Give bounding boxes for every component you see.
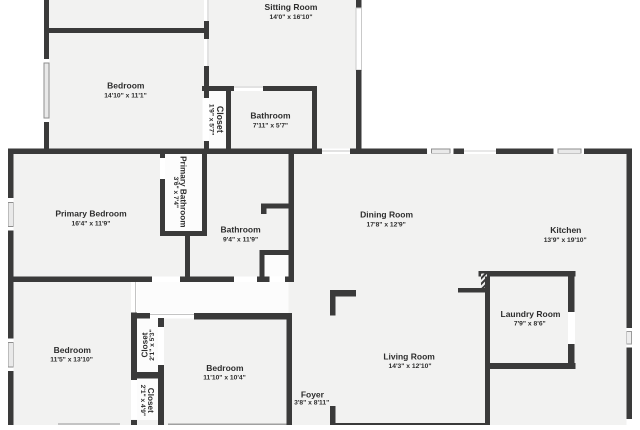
svg-text:Closet: Closet [146,388,155,413]
svg-text:Primary Bedroom: Primary Bedroom [55,209,127,219]
svg-text:9'4" x 11'9": 9'4" x 11'9" [223,237,258,244]
svg-text:Dining Room: Dining Room [360,210,413,220]
svg-text:Sitting Room: Sitting Room [265,2,318,12]
svg-text:2'1" x 5'3": 2'1" x 5'3" [149,329,156,360]
svg-text:7'9" x 8'6": 7'9" x 8'6" [514,321,546,328]
svg-text:Bedroom: Bedroom [54,345,92,355]
svg-text:14'3" x 12'10": 14'3" x 12'10" [389,363,432,370]
svg-text:Bedroom: Bedroom [206,363,244,373]
svg-text:Bathroom: Bathroom [221,225,262,235]
svg-text:11'10" x 10'4": 11'10" x 10'4" [203,375,246,382]
svg-text:7'11" x 5'7": 7'11" x 5'7" [253,122,288,129]
svg-text:17'8" x 12'9": 17'8" x 12'9" [367,222,406,229]
svg-text:3'8" x 8'11": 3'8" x 8'11" [294,400,329,407]
svg-text:3'6" x 7'4": 3'6" x 7'4" [172,177,179,208]
svg-text:14'0" x 16'10": 14'0" x 16'10" [270,14,313,21]
svg-text:14'10" x 11'1": 14'10" x 11'1" [104,93,147,100]
svg-text:Bedroom: Bedroom [107,81,145,91]
svg-text:Closet: Closet [140,332,149,357]
svg-text:2'1" x 4'9": 2'1" x 4'9" [139,385,146,416]
svg-text:13'9" x 19'10": 13'9" x 19'10" [544,237,587,244]
svg-text:Laundry Room: Laundry Room [501,309,561,319]
svg-text:Kitchen: Kitchen [550,225,581,235]
svg-text:Foyer: Foyer [301,390,325,400]
svg-text:16'4" x 11'9": 16'4" x 11'9" [72,220,111,227]
svg-text:Living Room: Living Room [383,352,435,362]
svg-text:Bathroom: Bathroom [250,111,291,121]
svg-text:11'5" x 13'10": 11'5" x 13'10" [50,356,93,363]
svg-text:Closet: Closet [215,106,225,133]
